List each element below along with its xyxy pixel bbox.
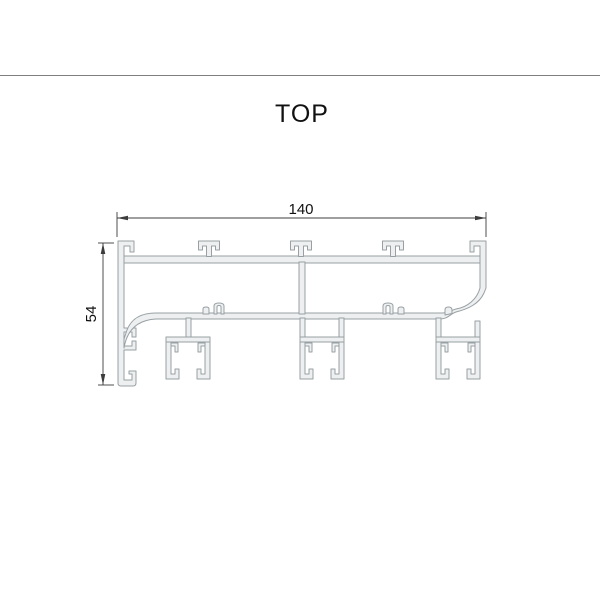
dim-arrow-right xyxy=(475,216,486,221)
profile-rib xyxy=(445,307,452,315)
dimension-height: 54 xyxy=(83,243,114,385)
dimension-height-label: 54 xyxy=(83,306,100,323)
profile-cross-section-drawing: 140 54 xyxy=(0,0,600,600)
dimension-width: 140 xyxy=(117,201,486,237)
profile-t-boss xyxy=(383,241,404,257)
profile-rib xyxy=(398,307,404,314)
dim-arrow-left xyxy=(117,216,128,221)
dim-arrow-bottom xyxy=(101,374,106,385)
profile-rib xyxy=(214,303,224,314)
profile-rib xyxy=(383,303,393,314)
profile-t-boss xyxy=(199,241,220,257)
dimension-width-label: 140 xyxy=(288,201,313,218)
dim-arrow-top xyxy=(101,243,106,254)
profile-body xyxy=(118,241,486,386)
profile-track-left xyxy=(166,318,210,379)
profile-rib xyxy=(203,307,209,314)
drawing-sheet: TOP xyxy=(0,0,600,600)
profile-central-web xyxy=(299,262,305,314)
profile-t-boss xyxy=(291,241,312,257)
profile-track-center xyxy=(300,318,344,379)
profile-track-right xyxy=(436,318,480,379)
